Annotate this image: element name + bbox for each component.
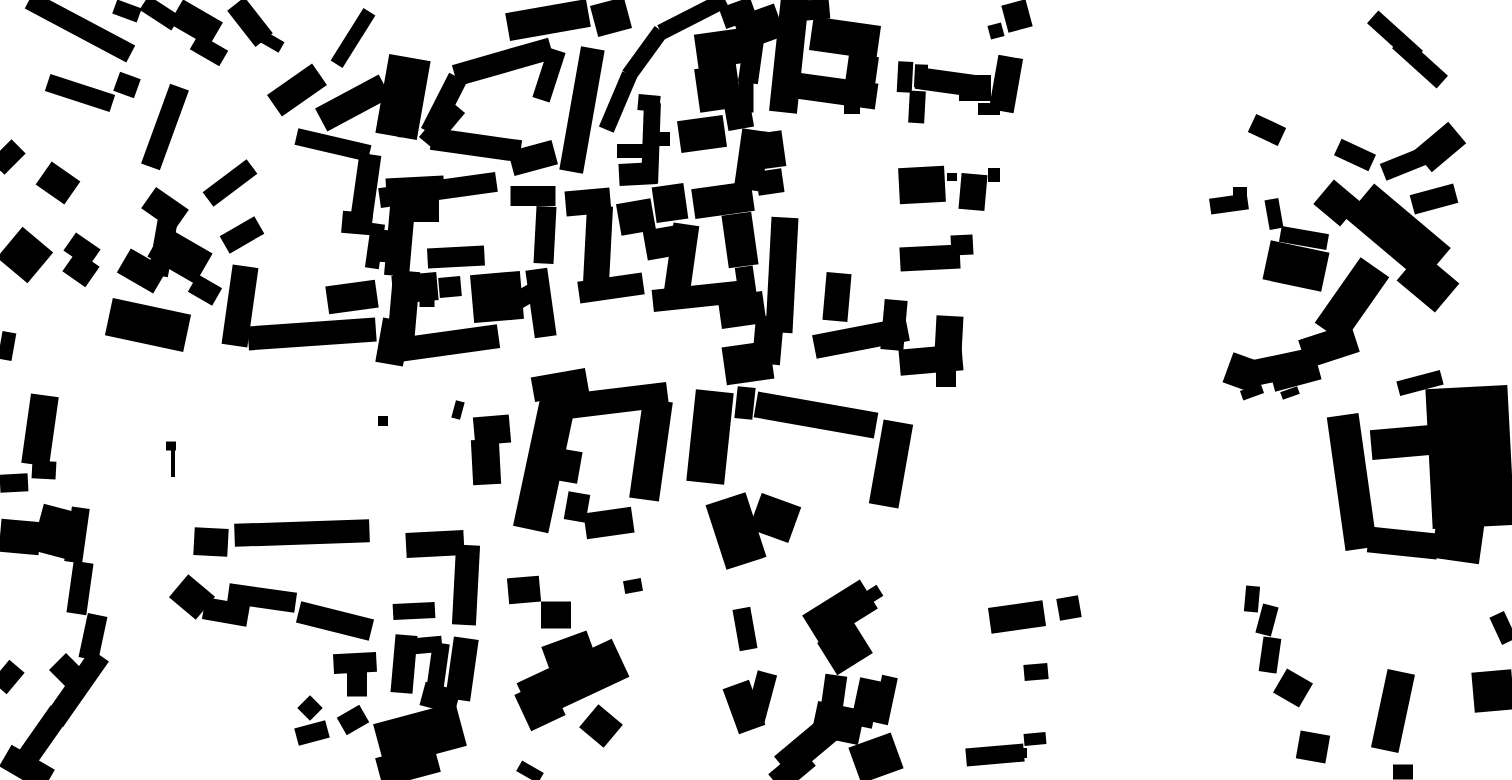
building-footprint	[541, 602, 571, 629]
building-footprint	[812, 317, 910, 359]
building-footprint	[247, 318, 376, 351]
building-footprint	[658, 132, 670, 146]
building-footprint	[988, 600, 1046, 633]
building-footprint	[936, 369, 956, 387]
building-footprint	[438, 276, 462, 298]
building-footprint	[21, 393, 58, 466]
figure-ground-map	[0, 0, 1512, 780]
building-footprint	[617, 144, 643, 158]
building-footprint	[1392, 36, 1448, 89]
building-footprint	[294, 720, 330, 746]
building-footprint	[1370, 424, 1444, 460]
map-canvas	[0, 0, 1512, 780]
building-footprint	[1410, 184, 1459, 215]
building-footprint	[897, 61, 914, 93]
building-footprint	[1273, 668, 1313, 707]
building-footprint	[507, 576, 541, 605]
building-footprint	[1471, 669, 1512, 712]
building-footprint	[427, 246, 485, 269]
building-footprint	[36, 161, 81, 204]
building-footprint	[0, 331, 16, 361]
building-footprint	[66, 561, 93, 615]
building-footprint	[1367, 526, 1439, 559]
building-footprint	[347, 670, 367, 697]
building-footprint	[331, 8, 376, 68]
building-footprint	[420, 297, 435, 307]
building-footprint	[32, 460, 57, 479]
building-footprint	[1334, 139, 1376, 171]
building-footprint	[516, 761, 544, 780]
building-footprint	[950, 234, 973, 255]
building-footprint	[754, 130, 787, 170]
building-footprint	[0, 660, 25, 694]
building-footprint	[1024, 732, 1047, 746]
building-footprint	[341, 211, 373, 236]
building-footprint	[297, 695, 322, 720]
building-footprint	[220, 216, 265, 253]
building-footprint	[844, 102, 860, 114]
building-footprint	[1425, 385, 1512, 529]
building-footprint	[1248, 114, 1286, 146]
building-footprint	[511, 186, 556, 206]
building-footprint	[203, 159, 258, 206]
building-footprint	[1489, 611, 1512, 645]
building-footprint	[958, 173, 987, 211]
building-footprint	[959, 75, 991, 101]
building-footprint	[618, 162, 657, 186]
building-footprint	[559, 46, 604, 173]
building-footprint	[337, 705, 370, 735]
building-footprint	[629, 398, 673, 501]
building-footprint	[0, 473, 28, 492]
building-footprint	[525, 268, 556, 338]
building-footprint	[112, 0, 142, 22]
building-footprint	[583, 507, 634, 539]
building-footprint	[1431, 516, 1484, 564]
building-footprint	[534, 206, 557, 264]
building-footprint	[1259, 636, 1282, 673]
building-footprint	[378, 416, 388, 426]
building-footprint	[732, 607, 757, 651]
building-footprint	[234, 519, 370, 547]
building-footprint	[869, 420, 913, 509]
building-footprint	[1265, 198, 1284, 230]
building-footprint	[754, 392, 879, 439]
building-footprint	[623, 578, 643, 594]
building-footprint	[1371, 669, 1415, 753]
building-footprint	[451, 400, 464, 420]
building-footprint	[505, 0, 591, 41]
building-footprint	[296, 601, 374, 640]
building-footprint	[734, 386, 755, 420]
building-footprint	[452, 544, 480, 625]
building-footprint	[45, 74, 115, 112]
building-footprint	[721, 212, 758, 269]
building-footprint	[1296, 731, 1330, 764]
building-footprint	[1233, 187, 1247, 201]
building-footprint	[391, 634, 418, 694]
building-footprint	[171, 449, 175, 477]
building-footprint	[822, 272, 851, 322]
building-footprint	[430, 128, 522, 162]
building-footprint	[755, 168, 784, 195]
building-footprint	[987, 22, 1004, 39]
building-footprint	[1255, 603, 1278, 636]
building-footprint	[393, 602, 436, 620]
building-footprint	[1023, 663, 1048, 681]
building-footprint	[722, 341, 775, 385]
building-footprint	[845, 53, 879, 87]
building-footprint	[652, 183, 689, 223]
building-footprint	[1393, 765, 1413, 780]
building-footprint	[599, 71, 637, 132]
building-footprint	[471, 439, 501, 485]
building-footprint	[1001, 0, 1032, 33]
building-footprint	[947, 173, 957, 181]
building-footprint	[0, 227, 53, 283]
building-footprint	[193, 527, 228, 557]
building-footprint	[1007, 748, 1027, 758]
building-footprint	[809, 16, 881, 59]
building-footprint	[0, 139, 26, 174]
building-footprint	[622, 26, 667, 80]
building-footprint	[686, 389, 733, 484]
building-footprint	[113, 72, 141, 98]
building-footprint	[908, 91, 926, 124]
building-footprint	[677, 115, 727, 153]
building-footprint	[583, 205, 613, 284]
building-footprint	[105, 298, 191, 352]
building-footprint	[590, 0, 632, 37]
building-footprint	[1056, 595, 1081, 620]
building-footprint	[898, 166, 946, 204]
building-footprint	[1244, 585, 1260, 612]
building-footprint	[141, 84, 189, 171]
building-footprint	[988, 168, 1000, 182]
building-footprint	[766, 217, 799, 333]
building-footprint	[325, 280, 378, 315]
building-footprint	[579, 704, 623, 748]
building-footprint	[989, 55, 1023, 114]
